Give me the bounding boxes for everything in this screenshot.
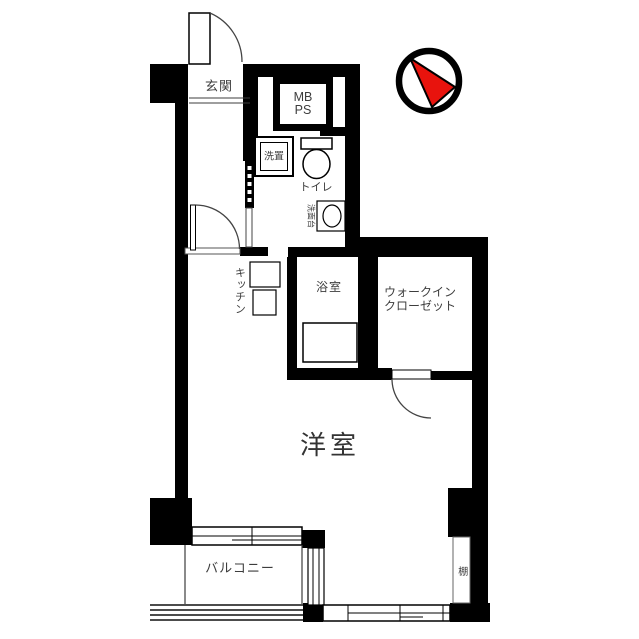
- wall-right-top: [345, 77, 360, 250]
- toilet-tank: [301, 138, 332, 149]
- meter-box-label: MB PS: [294, 91, 313, 117]
- toilet-label: トイレ: [300, 182, 333, 195]
- bathroom-label: 浴室: [316, 281, 342, 295]
- kitchen-stove: [253, 290, 276, 315]
- washbasin-bowl: [323, 205, 341, 227]
- wall-bath-bottom: [287, 368, 392, 380]
- wall-bath-left: [287, 257, 297, 371]
- wall-right-block: [448, 488, 488, 537]
- washer-space-label: 洗置: [264, 151, 284, 163]
- closet-door-leaf: [392, 370, 431, 379]
- wall-small-bottom-block: [303, 603, 323, 622]
- wall-bath-top: [288, 247, 345, 257]
- sliding-partition: [246, 208, 252, 247]
- walk-in-closet-label-line2: クローゼット: [384, 300, 456, 314]
- walk-in-closet-label: ウォークイン クローゼット: [384, 286, 456, 314]
- wall-right-lower: [470, 537, 488, 605]
- walk-in-closet-label-line1: ウォークイン: [384, 286, 456, 300]
- entrance-door-swing-arc: [210, 13, 242, 62]
- bottom-window: [323, 605, 450, 621]
- side-narrow-window: [308, 548, 324, 605]
- entrance-door-leaf: [189, 13, 210, 64]
- balcony-railing: [150, 605, 303, 620]
- balcony-sliding-window: [192, 527, 302, 545]
- toilet-bowl: [303, 150, 330, 179]
- kitchen-sink: [250, 262, 280, 287]
- wall-closet-bottom: [431, 371, 472, 380]
- wall-bath-right: [358, 257, 378, 371]
- wall-closet-top: [345, 237, 488, 257]
- entrance-label: 玄関: [205, 80, 233, 95]
- wall-bottom-left-block: [150, 498, 192, 545]
- wall-top-left-block: [150, 64, 188, 103]
- shelf-label: 棚: [455, 566, 467, 576]
- meter-box-label-line2: PS: [294, 104, 313, 117]
- wall-bottom-right-block: [450, 603, 490, 622]
- kitchen-label: キッチン: [233, 267, 246, 315]
- wall-mid-bottom-block: [302, 530, 325, 548]
- wall-top: [243, 64, 360, 77]
- closet-door-swing-arc: [392, 379, 431, 418]
- bathtub: [303, 323, 357, 362]
- floorplan-canvas: 玄関 MB PS 洗置 トイレ 洗面台 キッチン 浴室 ウォークイン クローゼッ…: [0, 0, 639, 639]
- wall-divider: [240, 247, 268, 256]
- wall-right: [472, 240, 488, 488]
- balcony-label: バルコニー: [205, 562, 275, 577]
- compass: [399, 51, 459, 111]
- washbasin-label: 洗面台: [306, 204, 315, 228]
- hall-door-swing-arc: [196, 205, 240, 249]
- western-room-label: 洋室: [300, 431, 360, 461]
- floorplan-drawing: [0, 0, 639, 639]
- hall-door-leaf: [191, 205, 196, 250]
- wall-left: [175, 103, 188, 503]
